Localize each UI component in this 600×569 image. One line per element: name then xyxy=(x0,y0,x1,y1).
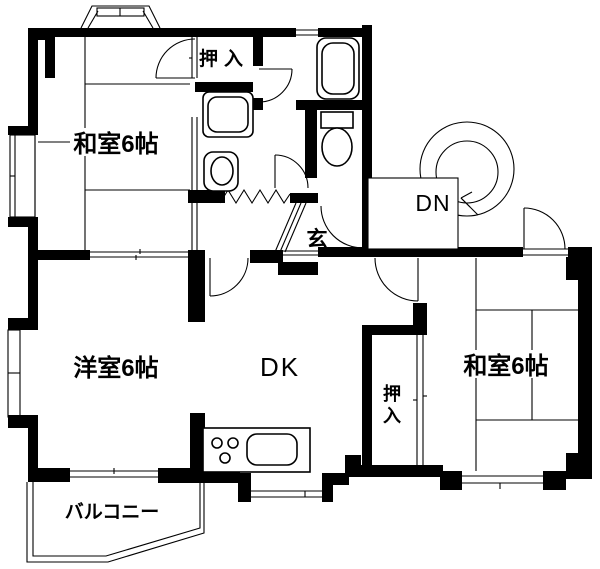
window-left-top-icon xyxy=(10,135,35,217)
kitchen-counter-icon xyxy=(203,428,310,472)
label-washitsu-bottom-right: 和室6帖 xyxy=(463,352,548,380)
spiral-staircase-icon xyxy=(368,122,514,249)
floor-plan-drawing: 和室6帖 押入 洋室6帖 DK 和室6帖 押 入 玄 DN バルコニー xyxy=(0,0,600,569)
label-yoshitsu: 洋室6帖 xyxy=(73,354,158,382)
door-dk-to-tatami-icon xyxy=(375,258,418,301)
label-washitsu-top-left: 和室6帖 xyxy=(73,130,158,158)
label-dk: DK xyxy=(260,352,300,382)
window-bottom-right-icon xyxy=(462,476,543,489)
door-toilet-icon xyxy=(275,155,308,188)
stair-arrow-icon xyxy=(461,192,478,215)
door-hall-to-dk-icon xyxy=(210,258,248,296)
zigzag-partition-icon xyxy=(220,190,290,203)
threshold-icon xyxy=(523,247,568,257)
label-oshiire-right-char1: 押 xyxy=(383,383,401,404)
label-oshiire-right-char2: 入 xyxy=(383,406,401,426)
sliding-door-inner-icon xyxy=(90,249,188,260)
label-genkan: 玄 xyxy=(307,227,328,251)
wash-basin-icon xyxy=(204,152,238,191)
kitchen-window-icon xyxy=(251,491,322,497)
floor-plan-page: 和室6帖 押入 洋室6帖 DK 和室6帖 押 入 玄 DN バルコニー xyxy=(0,0,600,569)
washing-machine-pan-icon xyxy=(203,92,253,137)
kitchen-sink-icon xyxy=(247,434,297,465)
label-dn: DN xyxy=(415,190,450,216)
label-oshiire-top: 押入 xyxy=(199,47,249,70)
bay-window-icon xyxy=(81,6,160,28)
toilet-icon xyxy=(321,112,353,166)
door-outdoor-right-icon xyxy=(524,208,565,249)
label-balcony: バルコニー xyxy=(65,501,160,523)
bathtub-icon xyxy=(317,38,359,99)
window-left-bottom-icon xyxy=(8,330,20,417)
door-bathroom-icon xyxy=(259,69,292,102)
balcony-door-icon xyxy=(68,468,158,477)
bathroom-window-icon xyxy=(296,30,318,35)
